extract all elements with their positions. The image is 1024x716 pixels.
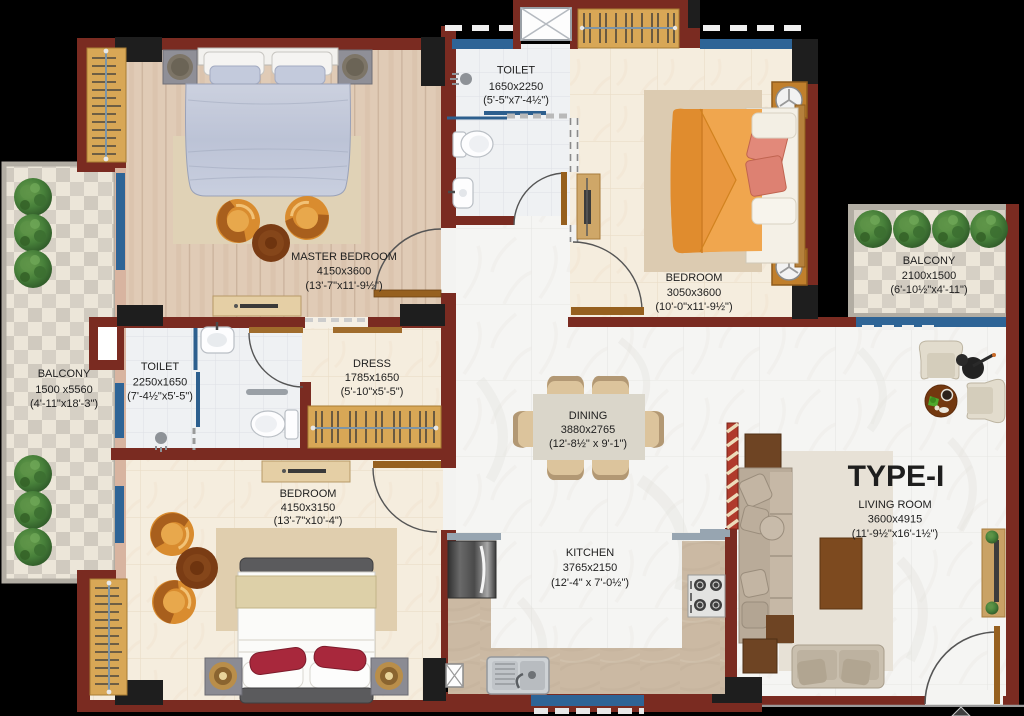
- svg-text:(5'-5"x7'-4½"): (5'-5"x7'-4½"): [483, 95, 549, 107]
- svg-text:4150x3150: 4150x3150: [281, 502, 335, 514]
- svg-text:BEDROOM: BEDROOM: [280, 488, 337, 500]
- svg-text:3765x2150: 3765x2150: [563, 562, 617, 574]
- svg-text:(4'-11"x18'-3"): (4'-11"x18'-3"): [30, 398, 98, 410]
- svg-text:LIVING ROOM: LIVING ROOM: [858, 499, 931, 511]
- svg-text:TOILET: TOILET: [141, 361, 180, 373]
- svg-text:(5'-10"x5'-5"): (5'-10"x5'-5"): [341, 386, 404, 398]
- svg-text:3050x3600: 3050x3600: [667, 287, 721, 299]
- svg-text:1500 x5560: 1500 x5560: [35, 384, 93, 396]
- svg-text:(12'-4" x 7'-0½"): (12'-4" x 7'-0½"): [551, 577, 629, 589]
- svg-text:MASTER BEDROOM: MASTER BEDROOM: [291, 251, 397, 263]
- svg-text:3880x2765: 3880x2765: [561, 424, 615, 436]
- svg-text:(12'-8½" x 9'-1"): (12'-8½" x 9'-1"): [549, 438, 627, 450]
- svg-text:(7'-4½"x5'-5"): (7'-4½"x5'-5"): [127, 391, 193, 403]
- svg-text:DINING: DINING: [569, 410, 608, 422]
- svg-text:4150x3600: 4150x3600: [317, 266, 371, 278]
- svg-text:1650x2250: 1650x2250: [489, 81, 543, 93]
- svg-text:KITCHEN: KITCHEN: [566, 547, 614, 559]
- svg-text:TYPE-I: TYPE-I: [848, 460, 945, 493]
- svg-text:TOILET: TOILET: [497, 65, 536, 77]
- svg-text:(13'-7"x11'-9½"): (13'-7"x11'-9½"): [305, 280, 382, 292]
- svg-text:BALCONY: BALCONY: [903, 255, 956, 267]
- svg-text:BALCONY: BALCONY: [38, 368, 91, 380]
- svg-text:2100x1500: 2100x1500: [902, 270, 956, 282]
- svg-text:2250x1650: 2250x1650: [133, 377, 187, 389]
- svg-text:DRESS: DRESS: [353, 358, 391, 370]
- svg-text:(10'-0"x11'-9½"): (10'-0"x11'-9½"): [655, 301, 732, 313]
- svg-text:BEDROOM: BEDROOM: [666, 272, 723, 284]
- svg-text:(13'-7"x10'-4"): (13'-7"x10'-4"): [274, 515, 343, 527]
- svg-text:(6'-10½"x4'-11"): (6'-10½"x4'-11"): [890, 284, 967, 296]
- svg-text:3600x4915: 3600x4915: [868, 514, 922, 526]
- svg-text:(11'-9½"x16'-1½"): (11'-9½"x16'-1½"): [852, 528, 938, 540]
- svg-text:1785x1650: 1785x1650: [345, 372, 399, 384]
